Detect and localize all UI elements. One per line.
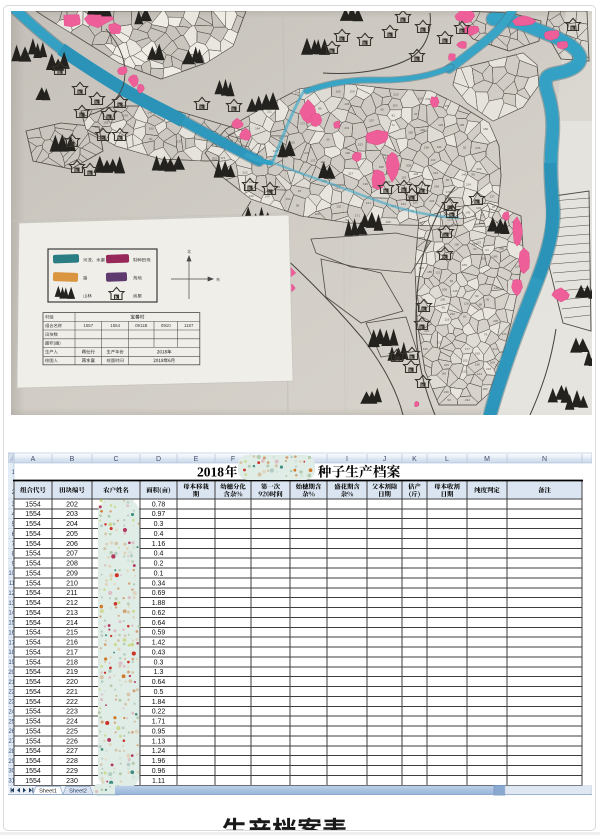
svg-text:1554: 1554 bbox=[25, 620, 41, 627]
svg-text:1554: 1554 bbox=[25, 719, 41, 726]
svg-text:206: 206 bbox=[66, 541, 78, 548]
svg-text:1554: 1554 bbox=[25, 561, 41, 568]
svg-text:24: 24 bbox=[8, 709, 15, 715]
svg-text:0.3: 0.3 bbox=[154, 659, 164, 666]
svg-text:1554: 1554 bbox=[25, 580, 41, 587]
svg-text:189: 189 bbox=[482, 387, 487, 391]
svg-text:64: 64 bbox=[485, 248, 489, 252]
svg-text:214: 214 bbox=[492, 347, 497, 351]
svg-text:L: L bbox=[445, 456, 449, 463]
svg-text:220: 220 bbox=[450, 312, 455, 316]
svg-text:214: 214 bbox=[466, 182, 471, 186]
svg-text:210: 210 bbox=[66, 580, 78, 587]
svg-text:0.59: 0.59 bbox=[152, 630, 166, 637]
svg-text:I: I bbox=[346, 456, 348, 463]
svg-text:E: E bbox=[194, 456, 199, 463]
svg-text:190: 190 bbox=[454, 242, 459, 246]
svg-text:218: 218 bbox=[66, 659, 78, 666]
svg-text:143: 143 bbox=[249, 194, 254, 198]
svg-text:25: 25 bbox=[8, 719, 15, 725]
svg-text:233: 233 bbox=[304, 151, 309, 155]
svg-text:213: 213 bbox=[66, 610, 78, 617]
svg-text:238: 238 bbox=[424, 146, 429, 150]
svg-text:200: 200 bbox=[440, 298, 445, 302]
svg-text:0910: 0910 bbox=[161, 323, 171, 328]
svg-text:165: 165 bbox=[441, 372, 446, 376]
svg-text:158: 158 bbox=[475, 362, 480, 366]
svg-text:166: 166 bbox=[499, 247, 504, 251]
svg-text:217: 217 bbox=[66, 649, 78, 656]
svg-text:102: 102 bbox=[462, 359, 467, 363]
svg-text:M: M bbox=[484, 456, 490, 463]
svg-text:0.64: 0.64 bbox=[152, 620, 166, 627]
svg-text:0.97: 0.97 bbox=[152, 511, 166, 518]
svg-text:65: 65 bbox=[381, 107, 385, 111]
svg-text:0.3: 0.3 bbox=[154, 521, 164, 528]
svg-text:90: 90 bbox=[149, 137, 153, 141]
svg-text:0.22: 0.22 bbox=[152, 709, 166, 716]
svg-text:211: 211 bbox=[66, 590, 77, 597]
svg-text:1554: 1554 bbox=[25, 600, 41, 607]
svg-text:1187: 1187 bbox=[184, 323, 194, 328]
svg-text:208: 208 bbox=[406, 163, 411, 167]
svg-text:90: 90 bbox=[447, 398, 451, 402]
svg-text:143: 143 bbox=[413, 172, 418, 176]
svg-text:1.11: 1.11 bbox=[152, 778, 165, 785]
svg-text:205: 205 bbox=[493, 319, 498, 323]
svg-text:1554: 1554 bbox=[25, 570, 41, 577]
svg-text:22: 22 bbox=[8, 690, 15, 696]
svg-text:159: 159 bbox=[103, 121, 108, 125]
svg-text:0.4: 0.4 bbox=[154, 531, 164, 538]
svg-text:30: 30 bbox=[8, 769, 15, 775]
svg-text:D: D bbox=[156, 456, 161, 463]
svg-text:1.24: 1.24 bbox=[152, 748, 166, 755]
svg-text:Sheet1: Sheet1 bbox=[39, 789, 57, 795]
svg-text:99: 99 bbox=[296, 203, 300, 207]
svg-text:225: 225 bbox=[66, 728, 78, 735]
svg-text:237: 237 bbox=[177, 139, 182, 143]
svg-text:0.4: 0.4 bbox=[154, 551, 164, 558]
svg-text:71: 71 bbox=[392, 123, 396, 127]
svg-text:214: 214 bbox=[66, 620, 78, 627]
svg-text:1554: 1554 bbox=[25, 590, 41, 597]
svg-text:149: 149 bbox=[264, 195, 269, 199]
svg-text:12: 12 bbox=[8, 591, 15, 597]
svg-text:202: 202 bbox=[212, 157, 217, 161]
svg-text:203: 203 bbox=[66, 511, 78, 518]
svg-text:121: 121 bbox=[366, 201, 371, 205]
svg-text:1554: 1554 bbox=[25, 640, 41, 647]
svg-text:1554: 1554 bbox=[25, 501, 41, 508]
svg-text:232: 232 bbox=[465, 398, 470, 402]
svg-text:0.2: 0.2 bbox=[154, 561, 164, 568]
svg-text:1554: 1554 bbox=[25, 669, 41, 676]
svg-text:103: 103 bbox=[476, 206, 481, 210]
svg-text:132: 132 bbox=[310, 159, 315, 163]
svg-text:212: 212 bbox=[433, 171, 438, 175]
svg-text:153: 153 bbox=[401, 176, 406, 180]
svg-text:231: 231 bbox=[344, 126, 349, 130]
svg-text:140: 140 bbox=[123, 114, 128, 118]
svg-text:217: 217 bbox=[348, 172, 353, 176]
svg-text:86: 86 bbox=[318, 107, 322, 111]
svg-text:190: 190 bbox=[345, 151, 350, 155]
svg-text:207: 207 bbox=[369, 119, 374, 123]
svg-text:1.42: 1.42 bbox=[152, 640, 166, 647]
svg-text:209: 209 bbox=[66, 570, 78, 577]
svg-text:126: 126 bbox=[464, 302, 469, 306]
svg-text:104: 104 bbox=[95, 125, 100, 129]
svg-text:0.64: 0.64 bbox=[152, 679, 166, 686]
svg-text:13: 13 bbox=[8, 601, 15, 607]
svg-text:1554: 1554 bbox=[25, 679, 41, 686]
svg-text:219: 219 bbox=[462, 370, 467, 374]
svg-text:1554: 1554 bbox=[25, 649, 41, 656]
svg-text:223: 223 bbox=[66, 709, 78, 716]
svg-text:148: 148 bbox=[494, 286, 499, 290]
svg-text:1554: 1554 bbox=[25, 610, 41, 617]
svg-text:146: 146 bbox=[461, 172, 466, 176]
svg-text:208: 208 bbox=[66, 561, 78, 568]
svg-text:219: 219 bbox=[66, 669, 78, 676]
svg-text:93: 93 bbox=[414, 112, 418, 116]
svg-text:124: 124 bbox=[477, 372, 482, 376]
svg-text:2018: 2018 bbox=[197, 465, 224, 480]
svg-text:176: 176 bbox=[444, 104, 449, 108]
svg-text:129: 129 bbox=[344, 102, 349, 106]
svg-text:165: 165 bbox=[462, 263, 467, 267]
svg-text:164: 164 bbox=[255, 127, 260, 131]
svg-text:0.78: 0.78 bbox=[152, 501, 166, 508]
svg-text:230: 230 bbox=[66, 778, 78, 785]
svg-text:69: 69 bbox=[326, 138, 330, 142]
svg-text:K: K bbox=[412, 456, 417, 463]
svg-text:14: 14 bbox=[8, 611, 15, 617]
svg-text:205: 205 bbox=[66, 531, 78, 538]
svg-text:87: 87 bbox=[298, 189, 302, 193]
svg-text:81: 81 bbox=[392, 114, 396, 118]
svg-text:228: 228 bbox=[66, 758, 78, 765]
svg-text:134: 134 bbox=[501, 332, 506, 336]
svg-text:15: 15 bbox=[8, 621, 15, 627]
svg-text:A: A bbox=[31, 456, 36, 463]
svg-text:11: 11 bbox=[9, 581, 16, 587]
svg-text:171: 171 bbox=[355, 213, 360, 217]
svg-text:196: 196 bbox=[459, 123, 464, 127]
svg-text:0.95: 0.95 bbox=[152, 728, 166, 735]
svg-text:27: 27 bbox=[8, 739, 15, 745]
svg-text:92: 92 bbox=[463, 146, 467, 150]
svg-text:225: 225 bbox=[444, 363, 449, 367]
svg-text:1554: 1554 bbox=[25, 630, 41, 637]
svg-text:0.43: 0.43 bbox=[152, 649, 166, 656]
svg-text:224: 224 bbox=[66, 719, 78, 726]
svg-text:215: 215 bbox=[66, 630, 78, 637]
svg-text:239: 239 bbox=[476, 167, 481, 171]
svg-text:161: 161 bbox=[437, 145, 442, 149]
svg-text:1554: 1554 bbox=[110, 323, 120, 328]
svg-text:1554: 1554 bbox=[25, 511, 41, 518]
svg-text:1554: 1554 bbox=[25, 758, 41, 765]
svg-text:1554: 1554 bbox=[25, 748, 41, 755]
svg-text:185: 185 bbox=[427, 270, 432, 274]
svg-text:129: 129 bbox=[438, 123, 443, 127]
svg-text:97: 97 bbox=[480, 213, 484, 217]
svg-text:J: J bbox=[383, 456, 387, 463]
svg-text:174: 174 bbox=[220, 156, 225, 160]
svg-text:165: 165 bbox=[408, 131, 413, 135]
svg-text:129: 129 bbox=[515, 264, 520, 268]
svg-text:0.62: 0.62 bbox=[152, 610, 166, 617]
svg-text:129: 129 bbox=[418, 97, 423, 101]
svg-text:211: 211 bbox=[267, 110, 272, 114]
svg-text:23: 23 bbox=[8, 700, 15, 706]
svg-text:194: 194 bbox=[285, 197, 290, 201]
svg-text:21: 21 bbox=[8, 680, 15, 686]
svg-text:C: C bbox=[113, 456, 118, 463]
svg-text:158: 158 bbox=[475, 352, 480, 356]
svg-text:208: 208 bbox=[442, 287, 447, 291]
svg-text:1554: 1554 bbox=[25, 768, 41, 775]
svg-text:19: 19 bbox=[8, 660, 15, 666]
svg-text:B: B bbox=[70, 456, 75, 463]
svg-text:1554: 1554 bbox=[25, 531, 41, 538]
svg-text:100: 100 bbox=[149, 127, 154, 131]
svg-text:1.16: 1.16 bbox=[152, 541, 166, 548]
svg-text:124: 124 bbox=[315, 212, 320, 216]
svg-text:28: 28 bbox=[8, 749, 15, 755]
svg-text:1554: 1554 bbox=[25, 778, 41, 785]
svg-text:0.34: 0.34 bbox=[152, 580, 166, 587]
svg-text:1554: 1554 bbox=[25, 689, 41, 696]
svg-text:126: 126 bbox=[444, 318, 449, 322]
svg-text:0911B: 0911B bbox=[135, 323, 147, 328]
svg-text:16: 16 bbox=[8, 630, 15, 636]
svg-text:145: 145 bbox=[453, 289, 458, 293]
svg-text:226: 226 bbox=[66, 738, 78, 745]
svg-text:165: 165 bbox=[336, 89, 341, 93]
svg-text:232: 232 bbox=[436, 341, 441, 345]
svg-text:0.69: 0.69 bbox=[152, 590, 166, 597]
svg-text:99: 99 bbox=[471, 173, 475, 177]
svg-text:95: 95 bbox=[446, 178, 450, 182]
svg-text:76: 76 bbox=[484, 333, 488, 337]
svg-text:N: N bbox=[542, 456, 547, 463]
svg-text:164: 164 bbox=[401, 202, 406, 206]
svg-text:88: 88 bbox=[479, 303, 483, 307]
svg-text:203: 203 bbox=[429, 199, 434, 203]
svg-text:81: 81 bbox=[486, 298, 490, 302]
svg-text:100: 100 bbox=[423, 347, 428, 351]
svg-text:29: 29 bbox=[8, 759, 15, 765]
svg-text:0.5: 0.5 bbox=[154, 689, 164, 696]
svg-text:1554: 1554 bbox=[25, 659, 41, 666]
svg-text:216: 216 bbox=[66, 640, 78, 647]
svg-text:31: 31 bbox=[8, 779, 15, 785]
svg-text:199: 199 bbox=[386, 220, 391, 224]
svg-text:97: 97 bbox=[492, 205, 496, 209]
svg-text:182: 182 bbox=[392, 104, 397, 108]
svg-text:1.71: 1.71 bbox=[152, 719, 166, 726]
svg-text:242: 242 bbox=[425, 97, 430, 101]
svg-text:F: F bbox=[231, 456, 235, 463]
svg-text:1554: 1554 bbox=[25, 541, 41, 548]
svg-text:212: 212 bbox=[66, 600, 78, 607]
svg-text:158: 158 bbox=[480, 257, 485, 261]
svg-text:153: 153 bbox=[358, 143, 363, 147]
svg-text:20: 20 bbox=[8, 670, 15, 676]
svg-text:166: 166 bbox=[483, 127, 488, 131]
svg-text:10: 10 bbox=[8, 571, 15, 577]
svg-text:113: 113 bbox=[476, 241, 481, 245]
svg-text:1557: 1557 bbox=[83, 323, 93, 328]
svg-text:202: 202 bbox=[66, 501, 78, 508]
svg-text:26: 26 bbox=[8, 729, 15, 735]
svg-text:102: 102 bbox=[336, 205, 341, 209]
svg-text:1.84: 1.84 bbox=[152, 699, 166, 706]
svg-text:213: 213 bbox=[419, 266, 424, 270]
svg-text:65: 65 bbox=[442, 306, 446, 310]
svg-text:81: 81 bbox=[463, 314, 467, 318]
svg-text:0.96: 0.96 bbox=[152, 768, 166, 775]
svg-text:229: 229 bbox=[393, 92, 398, 96]
svg-text:239: 239 bbox=[444, 390, 449, 394]
svg-text:1.3: 1.3 bbox=[154, 669, 164, 676]
svg-text:112: 112 bbox=[320, 160, 325, 164]
svg-text:1554: 1554 bbox=[25, 709, 41, 716]
svg-text:222: 222 bbox=[66, 699, 78, 706]
svg-text:220: 220 bbox=[420, 128, 425, 132]
svg-text:222: 222 bbox=[242, 170, 247, 174]
svg-text:159: 159 bbox=[349, 89, 354, 93]
svg-text:177: 177 bbox=[465, 347, 470, 351]
svg-text:112: 112 bbox=[436, 271, 441, 275]
svg-text:93: 93 bbox=[473, 247, 477, 251]
svg-text:1554: 1554 bbox=[25, 699, 41, 706]
svg-text:1.13: 1.13 bbox=[152, 738, 166, 745]
svg-text:90: 90 bbox=[475, 294, 479, 298]
svg-text:1554: 1554 bbox=[25, 738, 41, 745]
svg-text:248: 248 bbox=[434, 185, 439, 189]
svg-text:137: 137 bbox=[489, 194, 494, 198]
svg-text:1.96: 1.96 bbox=[152, 758, 166, 765]
svg-text:17: 17 bbox=[8, 640, 15, 646]
svg-text:1: 1 bbox=[12, 470, 16, 476]
svg-text:188: 188 bbox=[379, 165, 384, 169]
svg-text:81: 81 bbox=[450, 279, 454, 283]
svg-text:164: 164 bbox=[295, 90, 300, 94]
svg-text:1554: 1554 bbox=[25, 728, 41, 735]
svg-text:207: 207 bbox=[66, 551, 78, 558]
svg-text:Sheet2: Sheet2 bbox=[69, 789, 87, 795]
svg-text:172: 172 bbox=[300, 122, 305, 126]
svg-text:204: 204 bbox=[66, 521, 78, 528]
svg-text:189: 189 bbox=[492, 254, 497, 258]
svg-text:18: 18 bbox=[8, 650, 15, 656]
svg-text:220: 220 bbox=[66, 679, 78, 686]
svg-text:0.1: 0.1 bbox=[154, 570, 164, 577]
svg-text:227: 227 bbox=[66, 748, 78, 755]
svg-text:1554: 1554 bbox=[25, 551, 41, 558]
svg-text:229: 229 bbox=[66, 768, 78, 775]
svg-text:1554: 1554 bbox=[25, 521, 41, 528]
svg-text:235: 235 bbox=[475, 146, 480, 150]
svg-text:133: 133 bbox=[430, 158, 435, 162]
svg-text:221: 221 bbox=[66, 689, 78, 696]
svg-text:196: 196 bbox=[363, 182, 368, 186]
svg-text:145: 145 bbox=[465, 210, 470, 214]
svg-text:216: 216 bbox=[486, 367, 491, 371]
svg-text:1.88: 1.88 bbox=[152, 600, 166, 607]
